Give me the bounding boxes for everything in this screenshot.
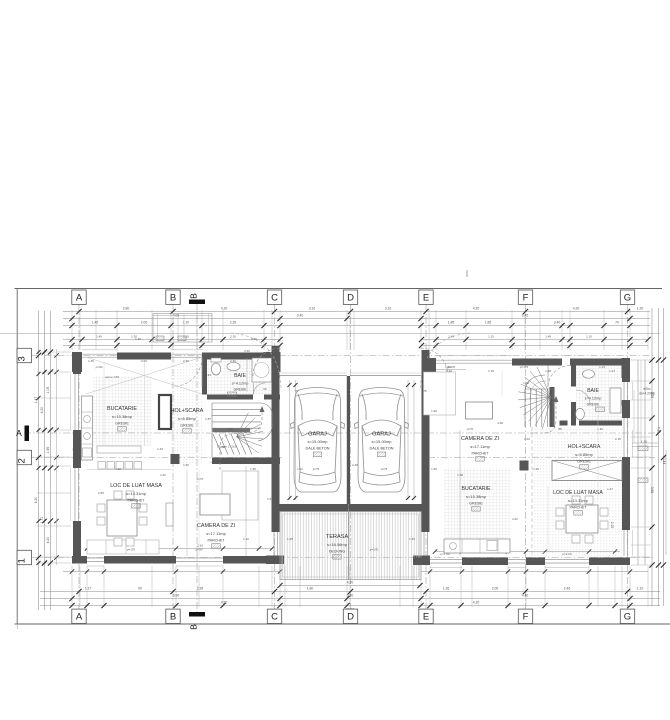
svg-text:1.17: 1.17 xyxy=(85,587,92,591)
svg-text:1.02: 1.02 xyxy=(524,437,530,441)
svg-text:1.35: 1.35 xyxy=(287,537,293,541)
svg-text:PARCHET: PARCHET xyxy=(128,499,146,503)
svg-text:85: 85 xyxy=(558,427,562,431)
svg-text:4.05: 4.05 xyxy=(173,314,180,318)
svg-text:PARCHET: PARCHET xyxy=(208,539,226,543)
svg-text:s=15.00mp: s=15.00mp xyxy=(372,439,393,444)
svg-text:2.00: 2.00 xyxy=(141,321,148,325)
svg-text:1.50: 1.50 xyxy=(431,467,437,471)
svg-text:3.10: 3.10 xyxy=(385,307,392,311)
svg-text:CAMERA DE ZI: CAMERA DE ZI xyxy=(197,523,235,529)
svg-text:1.85: 1.85 xyxy=(485,321,492,325)
svg-text:1.15: 1.15 xyxy=(488,335,494,339)
svg-text:GRESIE: GRESIE xyxy=(234,388,248,392)
svg-text:1.45: 1.45 xyxy=(88,359,94,363)
svg-text:BAIE: BAIE xyxy=(587,388,599,394)
svg-text:s=15.00mp: s=15.00mp xyxy=(308,439,329,444)
svg-text:p=75: p=75 xyxy=(381,467,388,471)
svg-text:1.35: 1.35 xyxy=(250,467,256,471)
svg-text:GARAJ: GARAJ xyxy=(308,432,327,438)
svg-text:2.55: 2.55 xyxy=(98,491,104,495)
svg-text:TERASA: TERASA xyxy=(326,534,349,540)
svg-text:E: E xyxy=(423,612,429,623)
svg-text:s=14.31mp: s=14.31mp xyxy=(568,498,589,503)
svg-text:4.20: 4.20 xyxy=(34,497,38,504)
svg-text:2.40: 2.40 xyxy=(244,349,250,353)
svg-text:G: G xyxy=(624,612,631,623)
svg-text:GARAJ: GARAJ xyxy=(372,432,391,438)
svg-text:s=6.85mp: s=6.85mp xyxy=(575,452,593,457)
svg-text:B: B xyxy=(170,293,176,304)
svg-text:3.10: 3.10 xyxy=(309,307,316,311)
svg-text:A: A xyxy=(76,612,83,623)
svg-text:p=70: p=70 xyxy=(467,427,474,431)
svg-text:1.68: 1.68 xyxy=(267,497,273,501)
svg-text:2.30: 2.30 xyxy=(183,359,189,363)
svg-text:s=17.11mp: s=17.11mp xyxy=(206,531,226,536)
svg-text:1.35: 1.35 xyxy=(409,537,415,541)
svg-text:75: 75 xyxy=(423,389,427,393)
svg-text:s=14.31mp: s=14.31mp xyxy=(126,491,147,496)
svg-text:GRESIE: GRESIE xyxy=(469,502,483,506)
svg-text:1.10: 1.10 xyxy=(183,321,190,325)
svg-text:B: B xyxy=(189,624,199,630)
svg-text:1.90: 1.90 xyxy=(431,409,437,413)
svg-text:DALE BETON: DALE BETON xyxy=(370,447,394,451)
svg-text:1.87: 1.87 xyxy=(205,417,211,421)
svg-text:4.48: 4.48 xyxy=(497,421,503,425)
svg-text:1.10: 1.10 xyxy=(586,335,592,339)
svg-text:1.15: 1.15 xyxy=(488,369,494,373)
svg-text:C: C xyxy=(271,612,278,623)
svg-text:2.15: 2.15 xyxy=(615,437,621,441)
svg-text:B: B xyxy=(170,612,176,623)
svg-text:4.40: 4.40 xyxy=(522,594,529,598)
svg-text:1.47: 1.47 xyxy=(34,397,38,404)
svg-text:1.43: 1.43 xyxy=(157,447,163,451)
svg-text:1.10: 1.10 xyxy=(637,587,644,591)
svg-text:1.20: 1.20 xyxy=(637,307,644,311)
svg-text:1.40: 1.40 xyxy=(446,369,452,373)
svg-text:2.00: 2.00 xyxy=(492,587,499,591)
svg-text:2.46: 2.46 xyxy=(564,587,571,591)
svg-text:G: G xyxy=(624,293,631,304)
svg-text:s=16.56mp: s=16.56mp xyxy=(327,542,348,547)
svg-text:C: C xyxy=(271,293,278,304)
svg-text:3.85: 3.85 xyxy=(650,487,654,494)
svg-text:1: 1 xyxy=(16,558,27,563)
svg-text:1.50: 1.50 xyxy=(183,463,189,467)
svg-text:BAIE: BAIE xyxy=(234,373,246,379)
svg-text:2.00: 2.00 xyxy=(141,359,147,363)
svg-text:5.80: 5.80 xyxy=(347,505,353,509)
svg-text:da+4.20mp: da+4.20mp xyxy=(639,392,655,396)
svg-text:HOL+SCARA: HOL+SCARA xyxy=(171,408,204,414)
svg-text:2: 2 xyxy=(16,458,27,463)
svg-text:4.20: 4.20 xyxy=(473,601,480,605)
svg-text:p=90: p=90 xyxy=(96,365,103,369)
svg-text:3: 3 xyxy=(16,356,27,361)
svg-text:6.45: 6.45 xyxy=(522,314,529,318)
svg-text:p=170: p=170 xyxy=(370,548,379,552)
svg-text:75: 75 xyxy=(294,389,298,393)
svg-text:1.05: 1.05 xyxy=(46,387,50,394)
svg-text:A: A xyxy=(16,428,22,438)
svg-text:4.20: 4.20 xyxy=(347,581,354,585)
svg-text:1.00: 1.00 xyxy=(227,427,233,431)
svg-text:1.47: 1.47 xyxy=(607,487,613,491)
svg-text:BUCATARIE: BUCATARIE xyxy=(462,486,491,492)
svg-text:1.95: 1.95 xyxy=(46,447,50,454)
svg-text:eSm: eSm xyxy=(644,387,651,391)
svg-text:s=4.12mp: s=4.12mp xyxy=(585,397,602,401)
svg-text:4.20: 4.20 xyxy=(221,601,228,605)
svg-text:2.35: 2.35 xyxy=(251,337,257,341)
svg-text:p=70: p=70 xyxy=(197,477,204,481)
svg-text:4.20: 4.20 xyxy=(221,307,228,311)
svg-text:HOL+SCARA: HOL+SCARA xyxy=(568,444,601,450)
svg-text:1.02: 1.02 xyxy=(297,467,303,471)
svg-text:5.80: 5.80 xyxy=(347,594,354,598)
svg-text:PARCHET: PARCHET xyxy=(570,506,588,510)
svg-text:2.35: 2.35 xyxy=(230,321,237,325)
svg-text:3.40: 3.40 xyxy=(554,321,561,325)
svg-text:s=6.85mp: s=6.85mp xyxy=(178,416,196,421)
svg-text:E: E xyxy=(423,293,429,304)
svg-text:DECKING: DECKING xyxy=(329,550,346,554)
svg-text:60: 60 xyxy=(263,387,267,391)
svg-text:D: D xyxy=(347,293,354,304)
svg-text:1.26: 1.26 xyxy=(443,587,450,591)
svg-text:1.33: 1.33 xyxy=(205,373,211,377)
svg-text:1.45: 1.45 xyxy=(96,335,102,339)
svg-text:A: A xyxy=(76,293,83,304)
svg-text:p=75: p=75 xyxy=(313,467,320,471)
svg-text:85 du 85 du 85: 85 du 85 du 85 xyxy=(212,395,232,399)
svg-text:1.45: 1.45 xyxy=(135,337,141,341)
svg-text:2.46: 2.46 xyxy=(352,463,358,467)
svg-text:4.20: 4.20 xyxy=(46,537,50,544)
svg-text:1.13: 1.13 xyxy=(599,365,605,369)
svg-text:1.10: 1.10 xyxy=(641,440,648,444)
svg-text:GRESIE: GRESIE xyxy=(115,422,129,426)
svg-text:p=170: p=170 xyxy=(520,365,529,369)
svg-text:1.19: 1.19 xyxy=(533,467,539,471)
svg-text:CAMERA DE ZI: CAMERA DE ZI xyxy=(461,436,499,442)
svg-text:1.45: 1.45 xyxy=(92,321,99,325)
svg-text:GRESIE: GRESIE xyxy=(587,403,601,407)
svg-text:s=4.12mp: s=4.12mp xyxy=(232,382,249,386)
svg-text:7.26: 7.26 xyxy=(657,427,661,434)
svg-text:0.40: 0.40 xyxy=(297,314,304,318)
svg-text:1.02: 1.02 xyxy=(160,473,166,477)
svg-text:F: F xyxy=(523,293,529,304)
svg-text:10.44: 10.44 xyxy=(662,456,666,465)
svg-text:LOC DE LUAT MASA: LOC DE LUAT MASA xyxy=(553,490,603,496)
svg-text:1.42: 1.42 xyxy=(115,467,121,471)
svg-text:B: B xyxy=(189,293,199,299)
svg-text:4.20: 4.20 xyxy=(40,407,44,414)
svg-text:1.48: 1.48 xyxy=(545,369,551,373)
svg-text:3.90: 3.90 xyxy=(173,594,180,598)
svg-text:2.15: 2.15 xyxy=(610,522,614,529)
svg-text:2.30: 2.30 xyxy=(230,335,236,339)
svg-text:2.40: 2.40 xyxy=(230,359,236,363)
svg-text:DALE BETON: DALE BETON xyxy=(306,447,330,451)
svg-text:s=15.38mp: s=15.38mp xyxy=(112,414,133,419)
svg-text:2.39: 2.39 xyxy=(197,587,204,591)
svg-text:GRESIE: GRESIE xyxy=(180,424,194,428)
svg-text:s=17.11mp: s=17.11mp xyxy=(470,444,490,449)
svg-text:D: D xyxy=(347,612,354,623)
svg-text:90: 90 xyxy=(138,587,142,591)
svg-text:p=170: p=170 xyxy=(127,548,136,552)
svg-text:p=1.50: p=1.50 xyxy=(440,552,450,556)
svg-text:F: F xyxy=(523,612,529,623)
svg-text:aprox 1.50: aprox 1.50 xyxy=(105,375,119,379)
svg-text:1.48: 1.48 xyxy=(523,381,529,385)
svg-text:2.80: 2.80 xyxy=(123,307,130,311)
svg-text:1.17: 1.17 xyxy=(609,369,615,373)
svg-text:60: 60 xyxy=(221,445,225,449)
svg-text:1.48: 1.48 xyxy=(545,335,551,339)
svg-text:4.20: 4.20 xyxy=(473,307,480,311)
svg-text:BUCATARIE: BUCATARIE xyxy=(107,406,137,412)
svg-text:p=90: p=90 xyxy=(73,447,80,451)
svg-text:1.85: 1.85 xyxy=(448,321,455,325)
svg-text:4.20: 4.20 xyxy=(573,307,580,311)
svg-text:p=4.00: p=4.00 xyxy=(562,552,572,556)
svg-text:1.71: 1.71 xyxy=(40,517,44,524)
svg-text:1.02: 1.02 xyxy=(512,517,518,521)
svg-text:s=15.38mp: s=15.38mp xyxy=(466,494,487,499)
svg-text:70: 70 xyxy=(615,321,619,325)
svg-text:LOC DE LUAT MASA: LOC DE LUAT MASA xyxy=(110,483,162,489)
svg-text:1.80: 1.80 xyxy=(307,587,314,591)
svg-text:PARCHET: PARCHET xyxy=(472,452,490,456)
svg-text:GRESIE: GRESIE xyxy=(577,460,591,464)
